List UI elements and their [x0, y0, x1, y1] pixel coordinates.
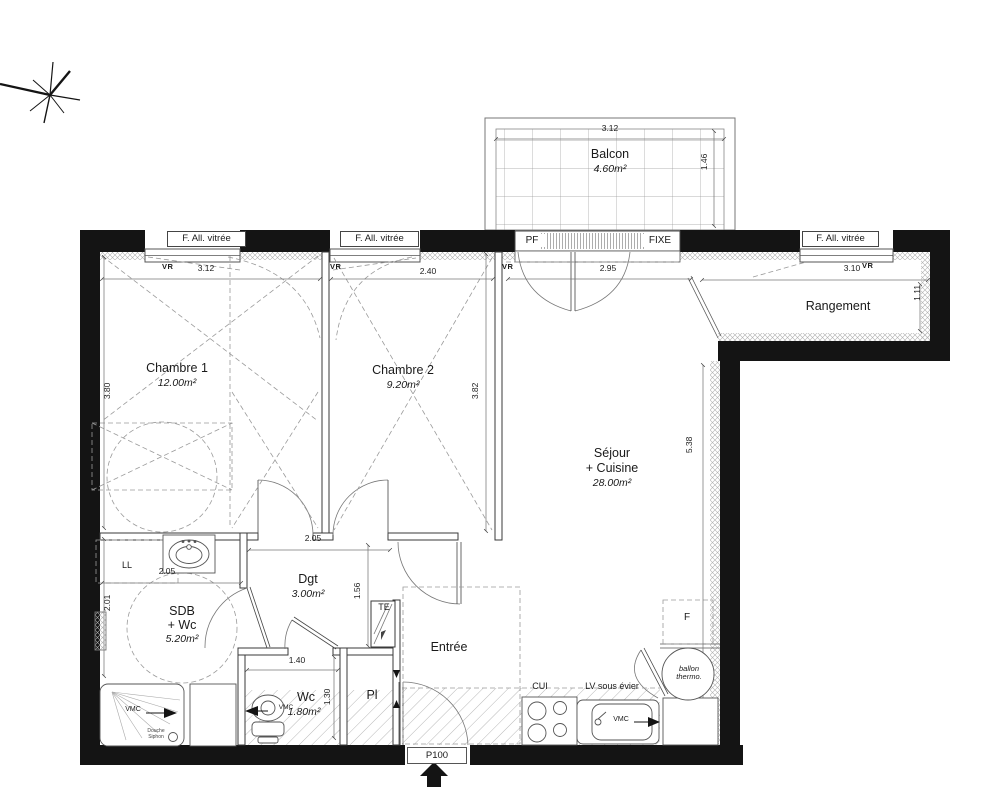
room-label-sdb: SDB: [140, 604, 224, 618]
dishwasher-label: LV sous évier: [566, 681, 658, 691]
window-label-1: F. All. vitrée: [167, 231, 246, 247]
dim-chambre1-width: 3.12: [186, 264, 226, 274]
dim-chambre1-height: 3.80: [103, 374, 113, 408]
entrance-arrow-icon: [420, 762, 448, 787]
dim-dgt-width: 2.05: [293, 534, 333, 544]
room-label-sejour: Séjour: [570, 446, 654, 460]
room-label-sdb-2: + Wc: [140, 618, 224, 632]
floor-plan: Balcon 4.60m² Chambre 1 12.00m² Chambre …: [0, 0, 1001, 800]
stove-label: CUI: [522, 681, 558, 691]
shutter-marker-3: VR: [502, 262, 513, 271]
room-label-chambre1: Chambre 1: [135, 361, 219, 375]
entry-door-tag: P100: [407, 747, 467, 764]
room-label-chambre2: Chambre 2: [360, 363, 446, 377]
water-heater-label: ballon thermo.: [658, 665, 720, 682]
room-area-dgt: 3.00m²: [270, 588, 346, 600]
dim-sdb-width: 2.05: [147, 567, 187, 577]
wall-liner: [100, 252, 930, 745]
vmc-label-wc: VMC: [272, 704, 300, 711]
doors: [205, 252, 668, 745]
room-label-wc: Wc: [286, 690, 326, 704]
room-label-rangement: Rangement: [793, 299, 883, 313]
dim-chambre2-height: 3.82: [471, 374, 481, 408]
vmc-label-kitchen: VMC: [606, 716, 636, 724]
room-area-balcon: 4.60m²: [570, 163, 650, 175]
room-label-entree: Entrée: [406, 640, 492, 654]
window-label-3: F. All. vitrée: [802, 231, 879, 247]
bathroom-cabinet: [190, 684, 236, 746]
dim-dgt-height: 1.56: [353, 574, 363, 608]
dim-rangement-depth: 1.11: [913, 276, 923, 310]
dim-sdb-height: 2.01: [103, 586, 113, 620]
fridge-label: F: [672, 612, 702, 624]
interior-walls: [100, 252, 502, 745]
dim-rangement-width: 3.10: [832, 264, 872, 274]
window-label-fixe: FIXE: [642, 234, 678, 247]
room-label-balcon: Balcon: [570, 147, 650, 161]
dim-balcon-width: 3.12: [590, 124, 630, 134]
room-area-sejour: 28.00m²: [570, 477, 654, 489]
room-area-chambre1: 12.00m²: [135, 377, 219, 389]
floorplan-drawing: [0, 0, 1001, 800]
kitchen-cabinet: [663, 698, 718, 745]
room-label-pl: Pl: [350, 688, 394, 702]
room-label-dgt: Dgt: [276, 572, 340, 586]
shutter-marker-2: VR: [330, 262, 341, 271]
vmc-label-shower: VMC: [118, 706, 148, 714]
room-area-chambre2: 9.20m²: [360, 379, 446, 391]
stove: [522, 697, 577, 745]
room-label-sejour-2: + Cuisine: [570, 461, 654, 475]
shutter-marker-1: VR: [162, 262, 173, 271]
dim-chambre2-width: 2.40: [408, 267, 448, 277]
shower-siphon-label: Douche Siphon: [142, 729, 170, 740]
window-label-2: F. All. vitrée: [340, 231, 419, 247]
dim-wc-width: 1.40: [277, 656, 317, 666]
dim-wc-height: 1.30: [323, 680, 333, 714]
dim-balcon-depth: 1.46: [700, 145, 710, 179]
north-compass-icon: [0, 62, 80, 123]
electrical-panel-label: TE: [370, 602, 398, 612]
room-area-sdb: 5.20m²: [140, 633, 224, 645]
dim-sejour-height: 5.38: [685, 428, 695, 462]
dim-sejour-width: 2.95: [588, 264, 628, 274]
washer-label: LL: [112, 560, 142, 570]
window-label-pf: PF: [519, 234, 545, 247]
